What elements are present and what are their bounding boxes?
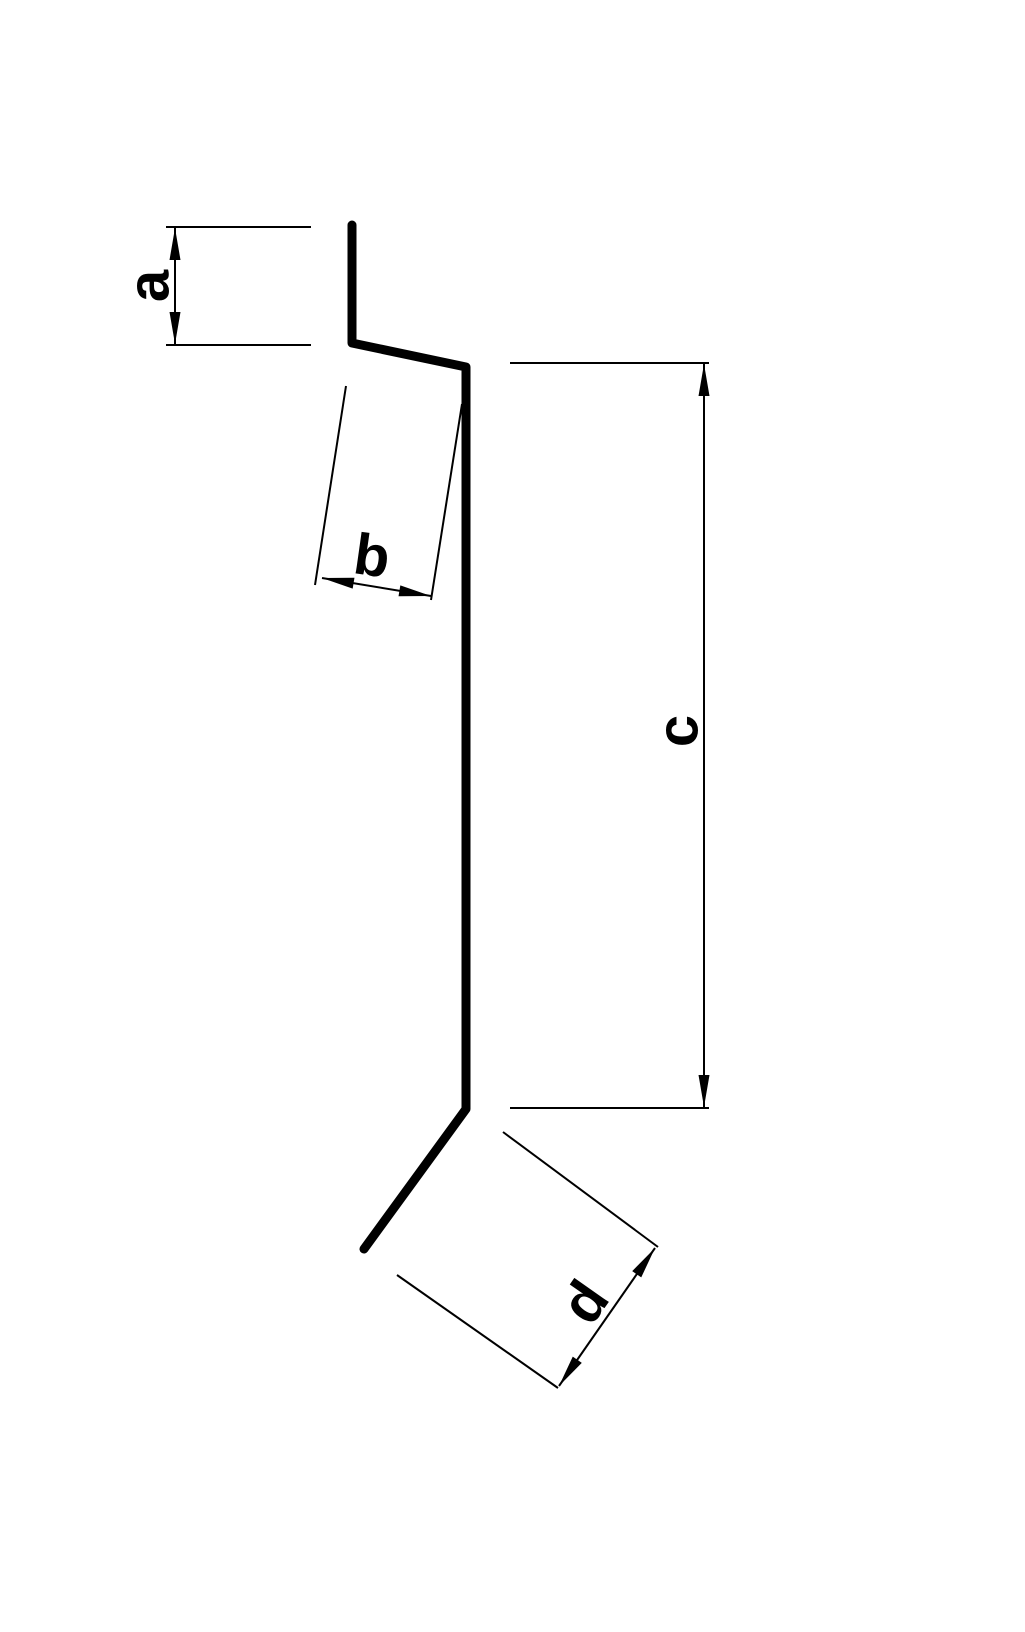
drawing-background	[0, 0, 1025, 1632]
drawing-canvas: abcd	[0, 0, 1025, 1632]
dim-label-c: c	[646, 715, 711, 747]
dim-label-a: a	[117, 269, 182, 302]
profile-technical-drawing: abcd	[0, 0, 1025, 1632]
